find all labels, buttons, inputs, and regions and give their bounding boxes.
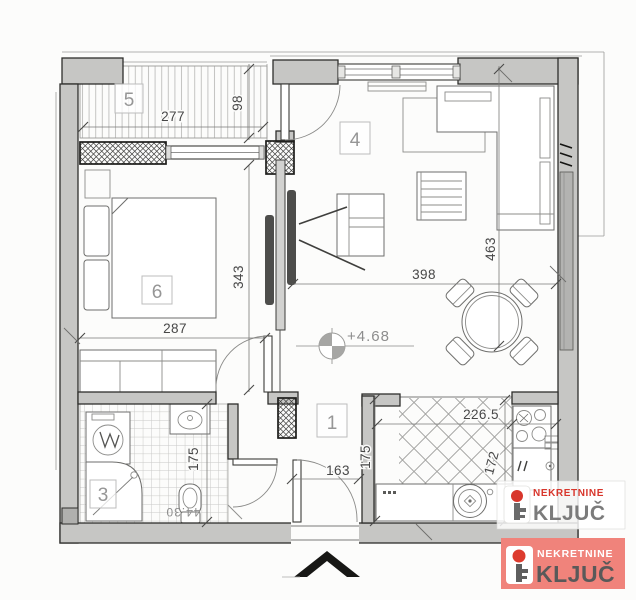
room-label-hall: 1 (327, 413, 338, 434)
floor-plan-svg: 277 98 287 343 398 463 163 175 175 226.5… (0, 0, 636, 600)
coffee-table (417, 172, 466, 220)
watermark-line2: KLJUČ (533, 501, 606, 525)
room-label-bathroom: 3 (98, 485, 109, 506)
kitchen-counter (376, 484, 513, 521)
rotated-bottom-label: 44.30 (165, 505, 200, 519)
room-label-terrace: 5 (124, 90, 135, 111)
elevation-label: +4.68 (347, 328, 390, 345)
bathroom-sink (170, 404, 210, 434)
dim-hall-depth: 175 (358, 445, 373, 469)
dim-living-width: 398 (412, 267, 436, 282)
wall-top-pier (273, 60, 338, 84)
wall-left (60, 84, 78, 543)
bedroom-window (166, 146, 264, 159)
watermark-line1: NEKRETNINE (533, 488, 604, 499)
dim-bedroom-depth: 343 (231, 265, 246, 289)
shaft-column-2 (278, 398, 296, 438)
dim-bath-depth: 175 (186, 447, 201, 471)
key-icon-badge (506, 546, 533, 584)
room-label-bedroom: 6 (152, 282, 163, 303)
wall-bottom-left-pier (62, 508, 78, 524)
entrance-opening (291, 521, 359, 545)
wall-top-left-stub (62, 58, 123, 84)
living-window (338, 64, 460, 80)
brand-badge: NEKRETNINE KLJUČ (501, 538, 625, 589)
floor-plan-page: 277 98 287 343 398 463 163 175 175 226.5… (0, 0, 636, 600)
badge-line1: NEKRETNINE (537, 548, 613, 560)
dining-table (462, 292, 522, 352)
key-icon (504, 486, 530, 523)
built-in-closet (80, 142, 166, 164)
right-window (560, 144, 573, 350)
washing-machine (86, 412, 130, 464)
dim-terrace-width: 277 (161, 109, 185, 124)
dim-terrace-depth: 98 (230, 95, 245, 111)
watermark-logo: NEKRETNINE KLJUČ (497, 481, 625, 529)
room-label-living: 4 (350, 130, 361, 151)
wardrobe (80, 350, 216, 393)
dim-hall-width: 163 (326, 463, 350, 478)
dim-kitchen-width: 226.5 (463, 407, 499, 422)
badge-line2: KLJUČ (536, 560, 615, 587)
dim-living-depth: 463 (483, 237, 498, 261)
dim-bedroom-width: 287 (163, 321, 187, 336)
